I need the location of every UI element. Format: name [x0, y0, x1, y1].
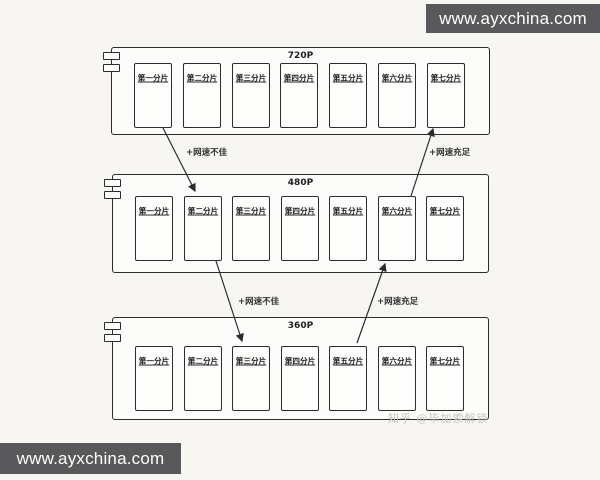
arrow-label-network-poor-1: +网速不佳	[186, 146, 227, 158]
segment-label: 第五分片	[333, 73, 363, 83]
segment-box: 第二分片	[184, 346, 222, 411]
segment-label: 第三分片	[235, 73, 265, 83]
segment-row-720p: 第一分片 第二分片 第三分片 第四分片 第五分片 第六分片 第七分片	[134, 63, 465, 128]
segment-label: 第一分片	[139, 206, 169, 216]
segment-label: 第一分片	[139, 356, 169, 366]
segment-label: 第七分片	[431, 73, 461, 83]
segment-box: 第一分片	[135, 346, 173, 411]
segment-label: 第三分片	[236, 206, 266, 216]
segment-box: 第二分片	[183, 63, 221, 128]
segment-box: 第四分片	[281, 196, 319, 261]
site-banner-bottom: www.ayxchina.com	[0, 443, 181, 474]
segment-label: 第七分片	[430, 356, 460, 366]
segment-box: 第三分片	[232, 196, 270, 261]
arrow-label-network-poor-2: +网速不佳	[238, 295, 279, 307]
component-port-icon	[104, 191, 121, 199]
segment-label: 第六分片	[382, 73, 412, 83]
segment-label: 第二分片	[187, 206, 217, 216]
panel-title-480p: 480P	[113, 178, 488, 188]
panel-480p: 480P 第一分片 第二分片 第三分片 第四分片 第五分片 第六分片 第七分片	[112, 174, 489, 273]
zhihu-watermark: 知乎 @毕加索解锁	[388, 410, 489, 426]
segment-box: 第六分片	[378, 196, 416, 261]
segment-box: 第五分片	[329, 63, 367, 128]
segment-box: 第七分片	[426, 346, 464, 411]
panel-360p: 360P 第一分片 第二分片 第三分片 第四分片 第五分片 第六分片 第七分片	[112, 317, 489, 420]
segment-label: 第二分片	[187, 356, 217, 366]
segment-box: 第七分片	[427, 63, 465, 128]
segment-label: 第二分片	[187, 73, 217, 83]
segment-label: 第四分片	[284, 206, 314, 216]
adaptive-bitrate-diagram: 720P 第一分片 第二分片 第三分片 第四分片 第五分片 第六分片 第七分片 …	[0, 0, 600, 480]
segment-label: 第三分片	[236, 356, 266, 366]
site-banner-top: www.ayxchina.com	[426, 4, 600, 33]
segment-box: 第四分片	[281, 346, 319, 411]
segment-box: 第一分片	[135, 196, 173, 261]
segment-row-360p: 第一分片 第二分片 第三分片 第四分片 第五分片 第六分片 第七分片	[135, 346, 464, 411]
segment-box: 第一分片	[134, 63, 172, 128]
segment-row-480p: 第一分片 第二分片 第三分片 第四分片 第五分片 第六分片 第七分片	[135, 196, 464, 261]
segment-box: 第七分片	[426, 196, 464, 261]
segment-label: 第七分片	[430, 206, 460, 216]
segment-box: 第六分片	[378, 63, 416, 128]
panel-title-360p: 360P	[113, 321, 488, 331]
segment-label: 第四分片	[284, 356, 314, 366]
component-port-icon	[103, 64, 120, 72]
segment-box: 第五分片	[329, 346, 367, 411]
segment-box: 第四分片	[280, 63, 318, 128]
segment-label: 第五分片	[333, 206, 363, 216]
arrow-label-network-good-2: +网速充足	[377, 295, 418, 307]
site-url-text: www.ayxchina.com	[17, 449, 165, 469]
component-port-icon	[104, 334, 121, 342]
segment-label: 第四分片	[284, 73, 314, 83]
segment-label: 第一分片	[138, 73, 168, 83]
segment-box: 第六分片	[378, 346, 416, 411]
arrow-label-network-good-1: +网速充足	[429, 146, 470, 158]
segment-box: 第三分片	[232, 63, 270, 128]
segment-box: 第二分片	[184, 196, 222, 261]
segment-label: 第六分片	[381, 356, 411, 366]
panel-720p: 720P 第一分片 第二分片 第三分片 第四分片 第五分片 第六分片 第七分片	[111, 47, 490, 135]
segment-box: 第三分片	[232, 346, 270, 411]
segment-label: 第六分片	[381, 206, 411, 216]
segment-box: 第五分片	[329, 196, 367, 261]
panel-title-720p: 720P	[112, 51, 489, 61]
segment-label: 第五分片	[333, 356, 363, 366]
site-url-text: www.ayxchina.com	[439, 9, 587, 29]
